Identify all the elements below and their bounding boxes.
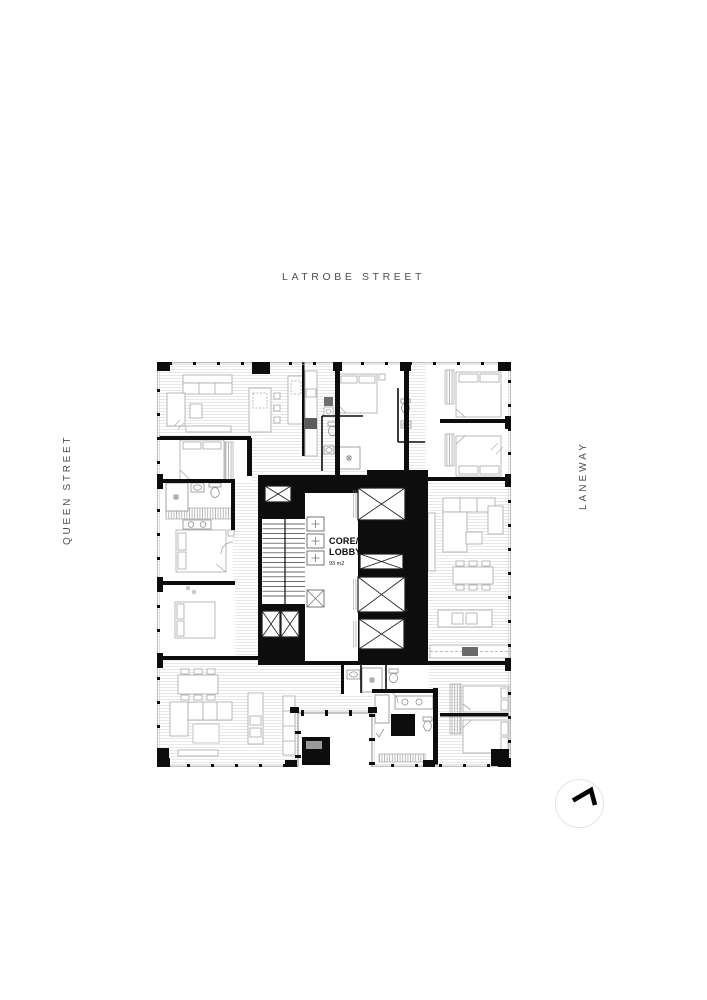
bed-icon (176, 530, 226, 572)
fridge-cabinet-icon (283, 696, 295, 755)
kitchen-island-icon (248, 693, 263, 744)
kitchen-island-icon (438, 610, 492, 627)
bed-icon (180, 440, 224, 480)
core-area-value: 93 m2 (329, 559, 362, 570)
stair-icon (262, 519, 309, 604)
core-label-line1: CORE/ (329, 536, 362, 547)
floor-plan-drawing: CORE/ LOBBY 93 m2 (157, 362, 511, 767)
riser-shafts (307, 517, 324, 607)
kitchen-counter-icon (430, 645, 509, 658)
tall-cabinet-icon (428, 513, 435, 571)
queen-street-label: QUEEN STREET (62, 435, 73, 545)
core-label-line2: LOBBY (329, 547, 362, 558)
kitchen-counter-icon (305, 371, 317, 456)
dining-table-icon (178, 669, 218, 700)
laneway-label: LANEWAY (578, 441, 589, 510)
core-lobby-label: CORE/ LOBBY 93 m2 (329, 536, 362, 570)
bed-icon (463, 686, 509, 712)
nightstand-icon (379, 374, 385, 380)
north-arrow-icon (556, 780, 605, 829)
kitchen-island-icon (288, 376, 304, 424)
floor-plan-page: LATROBE STREET QUEEN STREET LANEWAY (0, 0, 707, 1000)
bed-icon (463, 720, 509, 753)
nightstand-icon (228, 530, 234, 536)
bed-icon (338, 374, 377, 413)
range-icon (306, 741, 322, 749)
bed-icon (456, 372, 501, 417)
core-walls (258, 475, 428, 665)
latrobe-street-label: LATROBE STREET (0, 271, 707, 283)
north-arrow-badge (555, 779, 604, 828)
dining-table-icon (453, 561, 493, 590)
bed-icon (456, 436, 501, 476)
bed-icon (175, 602, 215, 638)
